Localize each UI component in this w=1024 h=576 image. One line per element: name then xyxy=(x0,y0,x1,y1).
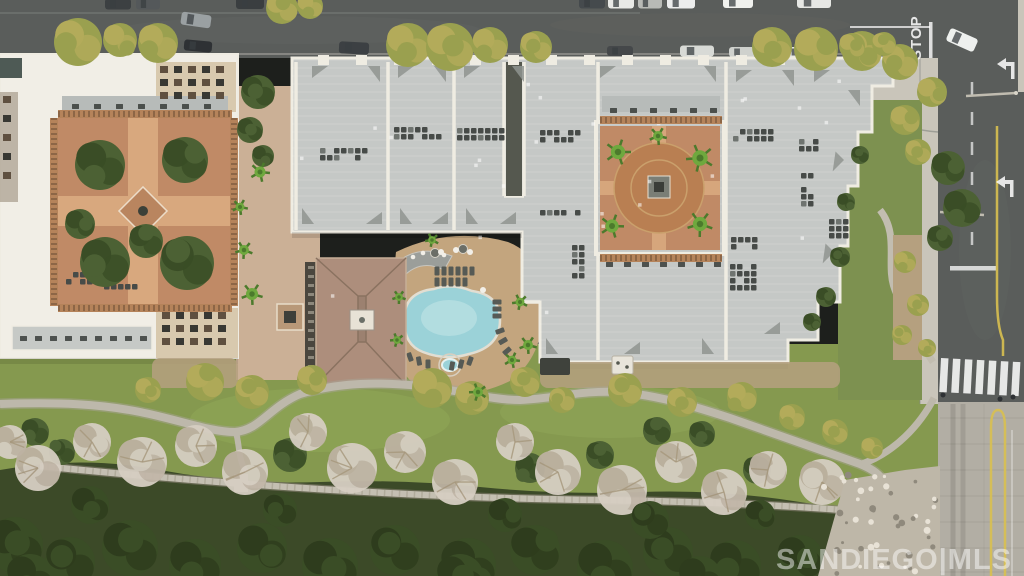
bare-tree-canopy xyxy=(802,468,823,489)
hvac-unit xyxy=(485,135,491,141)
pedestrian xyxy=(1011,395,1016,400)
hvac-unit xyxy=(540,210,546,216)
car-windshield xyxy=(189,41,196,50)
window xyxy=(174,92,182,99)
patio-furniture xyxy=(710,108,717,113)
bare-tree xyxy=(655,441,697,483)
hvac-unit xyxy=(836,219,842,225)
olive-tree xyxy=(397,42,417,62)
pergola-detail xyxy=(625,365,629,369)
hvac-unit xyxy=(761,136,767,142)
roof-vent xyxy=(539,96,543,100)
car-windshield xyxy=(584,0,590,7)
forest-tree xyxy=(647,514,668,535)
forest-tree xyxy=(118,527,143,552)
patio-furniture xyxy=(678,262,685,267)
parked-car xyxy=(723,0,753,8)
roof-vent xyxy=(638,203,642,207)
car-body xyxy=(667,0,695,9)
car-body xyxy=(607,46,633,56)
hvac-unit xyxy=(499,135,505,141)
hvac-unit xyxy=(843,226,849,232)
patio-furniture xyxy=(670,108,677,113)
parapet-notch xyxy=(508,55,519,65)
pool-lounger xyxy=(493,307,502,312)
shadow xyxy=(292,232,522,238)
hvac-unit xyxy=(768,129,774,135)
bar-stool xyxy=(411,255,416,260)
hvac-unit xyxy=(355,155,361,161)
hvac-unit xyxy=(471,135,477,141)
hvac-unit xyxy=(422,134,428,140)
hvac-unit xyxy=(801,201,807,207)
pool-lounger xyxy=(470,267,475,276)
hvac-unit xyxy=(485,128,491,134)
roof-vent xyxy=(331,294,335,298)
window xyxy=(216,79,224,86)
green-tree xyxy=(138,225,153,240)
hvac-unit xyxy=(737,264,743,270)
rock-speckle xyxy=(893,514,899,520)
hvac-unit xyxy=(568,137,574,143)
patio-furniture xyxy=(138,104,145,109)
bare-branch xyxy=(196,445,215,446)
window xyxy=(174,66,182,73)
patio-furniture xyxy=(20,336,27,341)
hvac-unit xyxy=(341,148,347,154)
green-tree xyxy=(248,84,263,99)
hvac-unit xyxy=(806,146,812,152)
green-tree xyxy=(79,217,93,231)
forest-tree xyxy=(5,530,30,555)
olive-tree xyxy=(912,300,922,310)
hvac-unit xyxy=(478,128,484,134)
green-tree xyxy=(275,452,290,467)
hvac-unit xyxy=(572,252,578,258)
plaza-fountain-basin xyxy=(284,311,296,323)
patio-furniture xyxy=(642,262,649,267)
hvac-unit xyxy=(751,271,757,277)
parked-car xyxy=(339,41,370,55)
parked-car xyxy=(105,0,131,10)
window xyxy=(216,92,224,99)
pool-lounger xyxy=(493,300,502,305)
car-body xyxy=(105,0,131,10)
roof-vent xyxy=(545,311,549,315)
hvac-unit xyxy=(499,128,505,134)
forest-tree xyxy=(83,501,100,518)
window xyxy=(160,79,168,86)
bare-tree xyxy=(749,451,787,489)
hvac-unit xyxy=(394,134,400,140)
olive-tree xyxy=(526,39,540,53)
palm-center xyxy=(238,205,242,209)
window xyxy=(204,325,212,332)
hvac-unit xyxy=(554,210,560,216)
car-windshield xyxy=(141,0,146,8)
rock-speckle xyxy=(858,487,865,494)
patio-furniture xyxy=(660,262,667,267)
olive-tree xyxy=(872,446,882,456)
olive-tree xyxy=(782,417,794,429)
car-windshield xyxy=(687,47,694,55)
window xyxy=(3,96,11,103)
hvac-unit xyxy=(737,271,743,277)
roof-vent xyxy=(526,83,530,87)
hvac-unit xyxy=(320,155,326,161)
window xyxy=(202,66,210,73)
parapet-notch xyxy=(356,55,367,65)
window xyxy=(162,338,170,345)
rock-speckle xyxy=(898,520,905,527)
bare-tree xyxy=(496,423,534,461)
bare-tree xyxy=(432,459,478,505)
palm-center xyxy=(615,149,622,156)
road-wear xyxy=(959,160,1011,340)
car-windshield xyxy=(734,49,740,56)
olive-tree xyxy=(933,88,947,102)
car-windshield xyxy=(804,0,811,7)
roof-vent xyxy=(534,140,538,144)
hvac-unit xyxy=(457,128,463,134)
bare-tree xyxy=(15,445,61,491)
palm-center xyxy=(697,155,704,162)
rock-speckle xyxy=(927,536,931,540)
hvac-unit xyxy=(320,148,326,154)
roof-vent xyxy=(474,164,478,168)
hvac-unit xyxy=(547,210,553,216)
far-right-sidewalk xyxy=(1018,0,1024,92)
window xyxy=(218,338,226,345)
green-tree xyxy=(166,239,190,263)
screenshot-root: STOP xyxy=(0,0,1024,576)
car-windshield xyxy=(673,0,679,7)
olive-tree xyxy=(816,35,836,55)
rock-speckle xyxy=(868,519,874,525)
olive-tree xyxy=(199,364,216,381)
window xyxy=(202,79,210,86)
bare-tree-canopy xyxy=(609,489,632,512)
green-tree xyxy=(846,202,854,210)
roof-vent xyxy=(600,212,604,216)
window xyxy=(162,312,170,319)
hvac-unit xyxy=(761,129,767,135)
pool-lounger xyxy=(456,267,461,276)
palm-center xyxy=(697,221,704,228)
car-body xyxy=(136,0,160,10)
hvac-unit xyxy=(744,278,750,284)
palm-center xyxy=(476,390,481,395)
olive-tree xyxy=(740,393,757,410)
hvac-unit xyxy=(829,226,835,232)
bare-tree xyxy=(289,413,327,451)
bare-tree xyxy=(799,459,845,505)
car-windshield xyxy=(612,48,618,55)
hvac-unit xyxy=(744,285,750,291)
forest-tree xyxy=(51,545,74,568)
roof-vent xyxy=(502,184,506,188)
patio-furniture xyxy=(125,336,132,341)
cupola-vent xyxy=(359,317,365,323)
olive-tree xyxy=(878,34,889,45)
hvac-unit xyxy=(327,155,333,161)
parapet-notch xyxy=(622,55,633,65)
hvac-unit xyxy=(579,259,585,265)
window xyxy=(160,66,168,73)
hvac-unit xyxy=(73,272,79,278)
window xyxy=(190,312,198,319)
pedestrian xyxy=(941,393,946,398)
rock-speckle xyxy=(853,517,859,523)
car-windshield xyxy=(186,14,194,25)
hvac-unit xyxy=(492,135,498,141)
hvac-unit xyxy=(429,134,435,140)
hvac-unit xyxy=(66,279,72,285)
patio-furniture xyxy=(72,104,79,109)
olive-tree xyxy=(476,45,492,61)
patio-furniture xyxy=(714,262,721,267)
forest-tree xyxy=(634,503,651,520)
olive-tree xyxy=(905,111,919,125)
hvac-unit xyxy=(579,245,585,251)
pool-shallow xyxy=(421,300,477,336)
window xyxy=(3,172,11,179)
forest-tree xyxy=(536,529,559,552)
hvac-unit xyxy=(334,155,340,161)
hvac-unit xyxy=(731,237,737,243)
hvac-unit xyxy=(747,136,753,142)
patio-furniture xyxy=(182,104,189,109)
hvac-unit xyxy=(464,135,470,141)
dark-roof-piece xyxy=(0,58,22,78)
forest-tree xyxy=(260,544,283,567)
hvac-unit xyxy=(752,237,758,243)
hvac-unit xyxy=(808,201,814,207)
olive-tree xyxy=(764,41,782,59)
window xyxy=(3,134,11,141)
roof-vent xyxy=(389,136,393,140)
window xyxy=(218,325,226,332)
hvac-unit xyxy=(348,148,354,154)
palm-center xyxy=(609,223,615,229)
alley-gap xyxy=(506,62,522,196)
parked-car xyxy=(638,0,662,9)
window xyxy=(218,312,226,319)
roof-vent xyxy=(825,121,829,125)
green-tree xyxy=(245,124,257,136)
patio-furniture xyxy=(94,104,101,109)
roof-vent xyxy=(601,225,605,229)
patio-furniture xyxy=(610,108,617,113)
stop-bar xyxy=(929,22,933,58)
parked-car xyxy=(680,46,714,57)
aerial-photo: STOP xyxy=(0,0,1024,576)
parapet-notch xyxy=(660,55,671,65)
olive-tree xyxy=(728,397,742,411)
hvac-unit xyxy=(575,130,581,136)
palm-center xyxy=(397,295,401,299)
palm-center xyxy=(395,338,399,342)
forest-tree xyxy=(651,537,674,560)
rock-speckle xyxy=(856,497,860,501)
car-body xyxy=(797,0,831,8)
hvac-unit xyxy=(492,128,498,134)
roof-vent xyxy=(711,174,715,178)
white-pergola xyxy=(612,356,633,374)
patio-furniture xyxy=(696,262,703,267)
car-windshield xyxy=(643,0,648,7)
hvac-unit xyxy=(843,219,849,225)
hvac-unit xyxy=(730,278,736,284)
bare-tree-canopy xyxy=(400,435,419,454)
pool-table xyxy=(453,247,459,253)
window xyxy=(3,115,11,122)
forest-tree xyxy=(506,507,521,522)
hvac-unit xyxy=(740,129,746,135)
patio-furniture xyxy=(650,108,657,113)
car-body xyxy=(638,0,662,9)
hvac-unit xyxy=(572,259,578,265)
hvac-unit xyxy=(334,148,340,154)
hvac-unit xyxy=(799,139,805,145)
hvac-unit xyxy=(829,219,835,225)
olive-tree xyxy=(145,385,157,397)
hvac-unit xyxy=(478,135,484,141)
pool-lounger xyxy=(426,360,431,369)
rock-speckle xyxy=(821,484,827,490)
olive-tree xyxy=(120,40,135,55)
car-windshield xyxy=(345,43,352,52)
pergola-detail xyxy=(616,361,620,365)
window xyxy=(204,312,212,319)
olive-tree xyxy=(675,396,689,410)
fountain-basin xyxy=(654,182,664,192)
rock-speckle xyxy=(932,505,937,510)
palm-center xyxy=(526,343,531,348)
hvac-unit xyxy=(415,127,421,133)
rock-speckle xyxy=(911,516,916,521)
patio-furniture xyxy=(606,262,613,267)
pool-lounger xyxy=(493,314,502,319)
patio-furniture xyxy=(65,336,72,341)
roof-vent xyxy=(591,122,595,126)
pool-table xyxy=(467,249,473,255)
car-body xyxy=(608,0,634,9)
rock-speckle xyxy=(869,505,876,512)
bare-tree-canopy xyxy=(294,432,311,449)
palm-center xyxy=(656,134,661,139)
hvac-unit xyxy=(801,194,807,200)
hvac-unit xyxy=(754,129,760,135)
rock-speckle xyxy=(883,483,889,489)
hvac-unit xyxy=(836,233,842,239)
green-tree xyxy=(650,418,663,431)
patio-furniture xyxy=(690,108,697,113)
courtyard-walkway xyxy=(602,96,720,112)
hvac-unit xyxy=(561,137,567,143)
green-tree xyxy=(948,159,963,174)
clubhouse xyxy=(316,258,406,385)
bare-tree xyxy=(73,423,111,461)
olive-tree xyxy=(517,372,531,386)
hvac-unit xyxy=(751,285,757,291)
car-windshield xyxy=(729,0,736,7)
rock-speckle xyxy=(925,519,930,524)
pool-lounger xyxy=(456,278,461,287)
hvac-unit xyxy=(422,127,428,133)
hvac-unit xyxy=(744,271,750,277)
green-tree xyxy=(936,229,948,241)
parked-car xyxy=(667,0,695,9)
green-tree xyxy=(60,448,74,462)
olive-tree xyxy=(74,35,100,61)
rock-speckle xyxy=(914,480,918,484)
forest-tree xyxy=(268,502,283,517)
bare-tree xyxy=(175,425,217,467)
hvac-unit xyxy=(362,148,368,154)
patio-furniture xyxy=(116,104,123,109)
window xyxy=(190,325,198,332)
palm-center xyxy=(258,170,263,175)
window xyxy=(216,66,224,73)
patio-furniture xyxy=(95,336,102,341)
hvac-unit xyxy=(730,285,736,291)
rock-speckle xyxy=(888,491,893,496)
pool-lounger xyxy=(463,267,468,276)
hvac-unit xyxy=(836,226,842,232)
green-tree xyxy=(696,431,708,443)
bare-tree xyxy=(222,449,268,495)
patio-furniture xyxy=(50,336,57,341)
window xyxy=(176,325,184,332)
olive-tree xyxy=(924,346,932,354)
hvac-unit xyxy=(730,271,736,277)
patio-furniture xyxy=(624,262,631,267)
hvac-unit xyxy=(401,127,407,133)
patio-furniture xyxy=(35,336,42,341)
west-balconies xyxy=(0,92,18,202)
hvac-unit xyxy=(572,273,578,279)
patio-furniture xyxy=(204,104,211,109)
parked-car xyxy=(607,46,633,56)
car-windshield xyxy=(242,0,248,8)
rock-speckle xyxy=(872,474,877,479)
arrow-shaft xyxy=(1010,180,1014,197)
parked-car xyxy=(579,0,605,9)
hvac-unit xyxy=(572,245,578,251)
pool-lounger xyxy=(442,278,447,287)
hvac-unit xyxy=(540,130,546,136)
hvac-unit xyxy=(394,127,400,133)
pool-lounger xyxy=(449,267,454,276)
car-windshield xyxy=(110,0,116,8)
left-building xyxy=(0,54,238,358)
hvac-unit xyxy=(768,136,774,142)
olive-tree xyxy=(241,379,256,394)
pool-table xyxy=(480,287,486,293)
hvac-unit xyxy=(752,244,758,250)
bare-tree xyxy=(117,437,167,487)
hvac-unit xyxy=(733,136,739,142)
hvac-unit xyxy=(355,148,361,154)
hvac-unit xyxy=(751,264,757,270)
patio-furniture xyxy=(110,336,117,341)
hvac-unit xyxy=(436,134,442,140)
hvac-unit xyxy=(540,137,546,143)
rock-speckle xyxy=(854,478,858,482)
rock-speckle xyxy=(837,510,844,517)
bar-stool xyxy=(421,251,426,256)
